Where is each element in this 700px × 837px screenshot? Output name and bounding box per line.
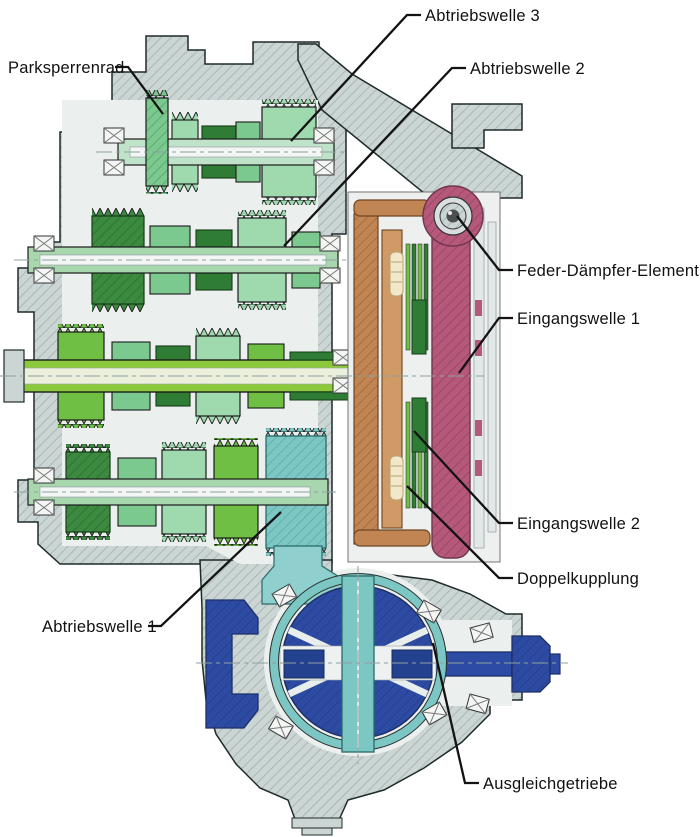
side-gear-left [284, 650, 324, 678]
bearing [104, 128, 124, 143]
coil-spring [390, 456, 403, 500]
clutch-carrier-arm-top [354, 200, 430, 216]
label-feder-daempfer: Feder-Dämpfer-Element [517, 262, 699, 281]
cutaway-drawing [0, 0, 700, 837]
bearing [34, 468, 54, 483]
side-gear-right [392, 650, 432, 678]
bearing [320, 236, 340, 251]
clutch-hub-upper [412, 300, 426, 354]
clutch-carrier-outer [354, 214, 378, 544]
bearing [34, 236, 54, 251]
clutch-hub-lower [412, 398, 426, 452]
label-abtriebswelle-2: Abtriebswelle 2 [470, 60, 585, 79]
label-abtriebswelle-1: Abtriebswelle 1 [42, 618, 157, 637]
clutch-drum [432, 192, 470, 558]
label-doppelkupplung: Doppelkupplung [517, 570, 639, 589]
label-ausgleichgetriebe: Ausgleichgetriebe [483, 775, 618, 794]
bearing [320, 268, 340, 283]
clutch-carrier-arm-bottom [354, 530, 430, 546]
right-output-flange [512, 636, 550, 692]
drain-bolt [292, 818, 342, 828]
label-eingangswelle-1: Eingangswelle 1 [517, 310, 640, 329]
label-parksperrenrad: Parksperrenrad [8, 59, 125, 78]
label-eingangswelle-2: Eingangswelle 2 [517, 515, 640, 534]
bearing [34, 500, 54, 515]
bearing [314, 128, 334, 143]
bearing [314, 160, 334, 175]
transmission-cutaway-figure: Parksperrenrad Abtriebswelle 3 Abtriebsw… [0, 0, 700, 837]
label-abtriebswelle-3: Abtriebswelle 3 [425, 7, 540, 26]
bearing [104, 160, 124, 175]
coil-spring [390, 252, 403, 296]
drain-bolt-tip [302, 828, 332, 835]
mount-bracket [452, 104, 522, 148]
dual-clutch-assembly [348, 192, 500, 562]
bearing [34, 268, 54, 283]
